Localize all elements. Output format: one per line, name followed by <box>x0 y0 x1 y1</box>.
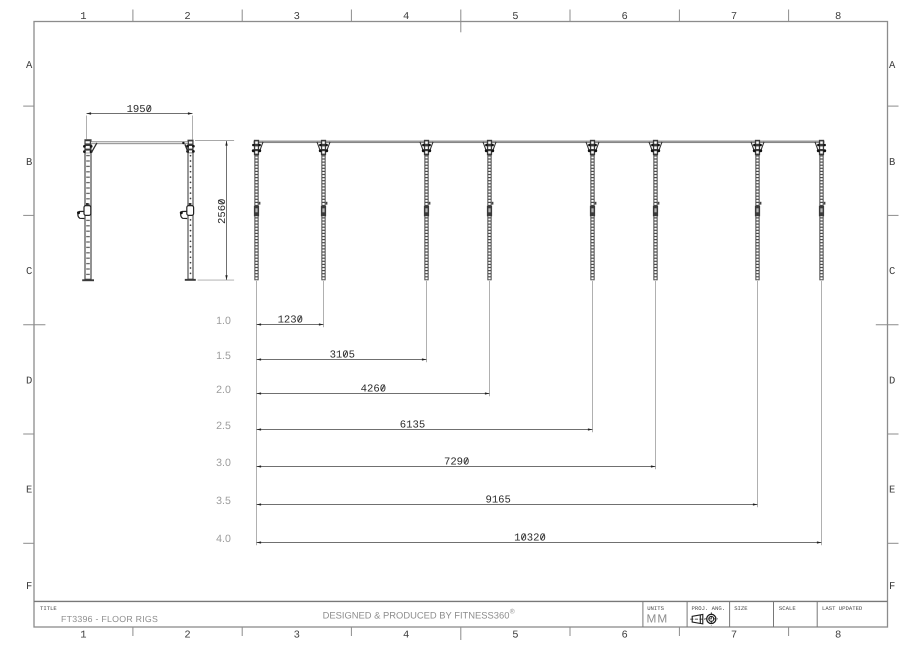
svg-text:1: 1 <box>80 630 86 642</box>
svg-text:6: 6 <box>622 11 628 23</box>
svg-text:D: D <box>26 375 32 387</box>
svg-text:7: 7 <box>731 630 737 642</box>
svg-text:C: C <box>26 266 32 278</box>
svg-text:2: 2 <box>184 11 190 23</box>
svg-text:5: 5 <box>512 11 518 23</box>
svg-text:B: B <box>889 157 895 169</box>
svg-text:9165: 9165 <box>485 494 510 506</box>
svg-text:E: E <box>26 485 32 497</box>
svg-text:F: F <box>26 581 32 593</box>
svg-text:D: D <box>889 375 895 387</box>
svg-text:6: 6 <box>622 630 628 642</box>
svg-text:B: B <box>26 157 32 169</box>
svg-text:2.5: 2.5 <box>216 420 231 432</box>
svg-text:2.0: 2.0 <box>216 384 231 396</box>
svg-text:3.5: 3.5 <box>216 495 231 507</box>
svg-text:C: C <box>889 266 895 278</box>
svg-text:4: 4 <box>403 630 409 642</box>
svg-text:LAST UPDATED: LAST UPDATED <box>822 605 863 612</box>
svg-text:SIZE: SIZE <box>734 605 748 612</box>
svg-text:8: 8 <box>835 11 841 23</box>
svg-text:PROJ. ANG.: PROJ. ANG. <box>692 605 726 612</box>
svg-text:®: ® <box>510 609 515 616</box>
svg-text:1.0: 1.0 <box>216 315 231 327</box>
svg-text:1: 1 <box>80 11 86 23</box>
svg-text:2: 2 <box>184 630 190 642</box>
svg-text:3105: 3105 <box>330 349 355 361</box>
svg-text:6135: 6135 <box>400 419 425 431</box>
svg-text:TITLE: TITLE <box>40 605 57 612</box>
svg-text:4: 4 <box>403 11 409 23</box>
svg-text:3: 3 <box>294 11 300 23</box>
svg-text:FT3396 - FLOOR RIGS: FT3396 - FLOOR RIGS <box>61 614 158 624</box>
svg-text:5: 5 <box>512 630 518 642</box>
svg-text:SCALE: SCALE <box>779 605 796 612</box>
svg-text:10320: 10320 <box>514 532 546 544</box>
svg-text:A: A <box>889 60 896 72</box>
svg-text:DESIGNED & PRODUCED BY FITNESS: DESIGNED & PRODUCED BY FITNESS360 <box>323 610 510 621</box>
svg-text:4.0: 4.0 <box>216 533 231 545</box>
svg-text:7: 7 <box>731 11 737 23</box>
svg-text:3: 3 <box>294 630 300 642</box>
svg-text:E: E <box>889 485 895 497</box>
svg-text:A: A <box>26 60 33 72</box>
svg-text:MM: MM <box>647 612 669 626</box>
svg-text:3.0: 3.0 <box>216 457 231 469</box>
svg-text:F: F <box>889 581 895 593</box>
svg-text:8: 8 <box>835 630 841 642</box>
svg-text:1.5: 1.5 <box>216 350 231 362</box>
